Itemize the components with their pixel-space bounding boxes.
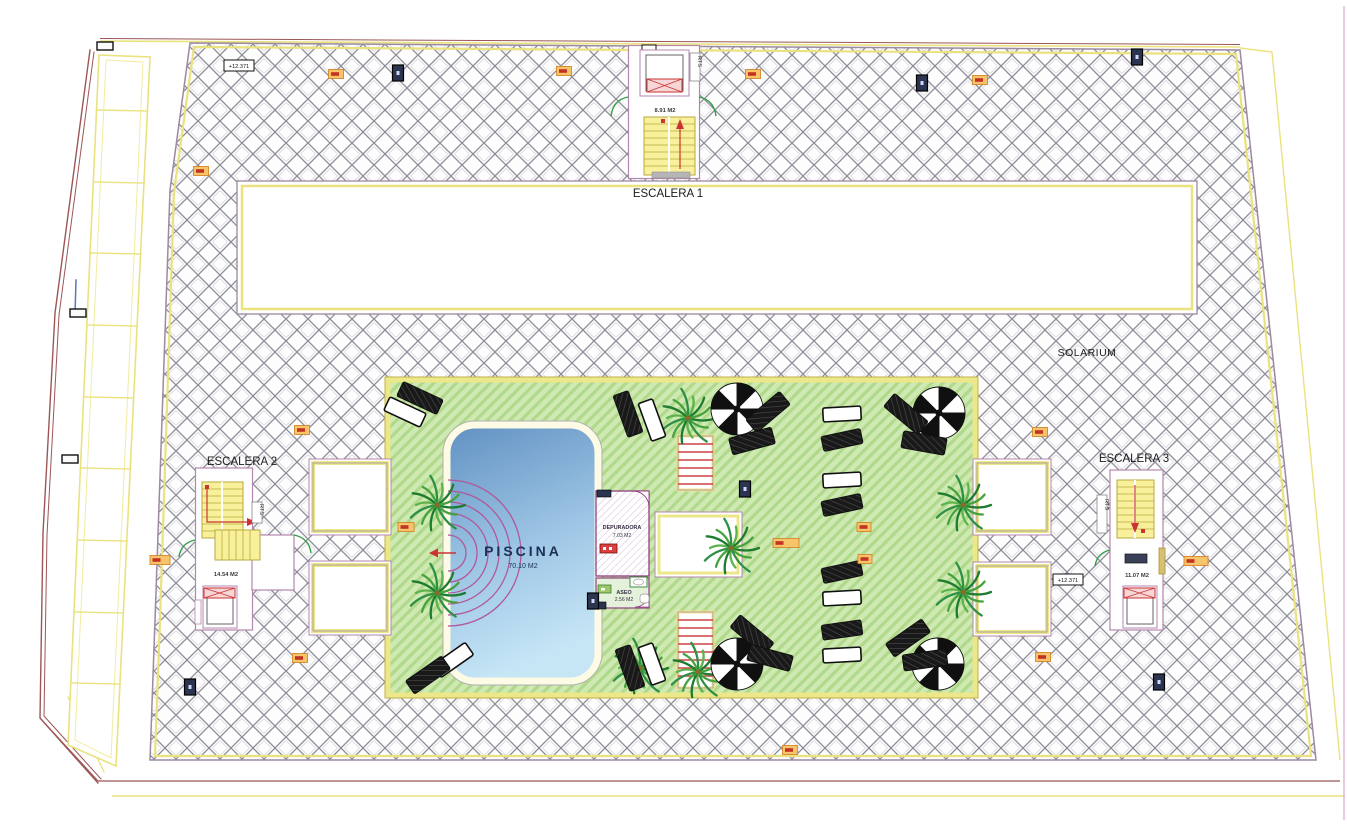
floor-plan-svg: PISCINA 70.10 M2 DEPURADORA 7.03 M2 ASEO… [0, 0, 1347, 825]
skylight-box [973, 459, 1051, 535]
depuradora-label: DEPURADORA [603, 525, 642, 531]
escalera1-title: ESCALERA 1 [633, 188, 703, 200]
orange-code-badge [857, 523, 871, 532]
swimming-pool: PISCINA 70.10 M2 [429, 421, 602, 685]
orange-code-badge [329, 70, 344, 79]
balcony-divider [90, 253, 140, 254]
badge-mark [153, 558, 161, 562]
escalera3-level-badge [1125, 554, 1147, 563]
floor-plan-page: PISCINA 70.10 M2 DEPURADORA 7.03 M2 ASEO… [0, 0, 1347, 825]
palm-trunk [961, 503, 966, 508]
escalera3-area-label: 11.07 M2 [1125, 573, 1149, 579]
navy-riser-badge [1154, 674, 1165, 690]
badge-mark [785, 748, 793, 752]
skylight-box [309, 459, 391, 535]
palm-trunk [729, 546, 734, 551]
pool-area-label: 70.10 M2 [508, 563, 537, 570]
badge-dot [397, 71, 400, 75]
badge-mark [860, 525, 868, 529]
badge-dot [1136, 55, 1139, 59]
sun-lounger-icon [823, 472, 862, 488]
orange-code-badge [150, 556, 170, 565]
navy-riser-badge [393, 65, 404, 81]
badge-mark [559, 69, 567, 73]
aseo-area-label: 2.56 M2 [615, 597, 634, 603]
palm-trunk [435, 591, 440, 596]
parasol-pole [936, 410, 943, 417]
badge-dot [189, 685, 192, 689]
badge-mark [861, 557, 869, 561]
parasol-pole [734, 661, 741, 668]
orange-code-badge [973, 76, 988, 85]
upper-void-rectangle [237, 181, 1197, 314]
badge-mark [748, 72, 756, 76]
orange-code-badge [746, 70, 761, 79]
palm-trunk [961, 590, 966, 595]
sun-lounger-icon [823, 647, 862, 663]
deck-walkway-north [678, 436, 713, 490]
badge-mark [1035, 430, 1043, 434]
orange-code-badge [1036, 653, 1051, 662]
palm-trunk [435, 503, 440, 508]
escalera2-rts-label: RTS [258, 504, 264, 515]
badge-mark [297, 428, 305, 432]
escalera3-title: ESCALERA 3 [1099, 453, 1169, 465]
navy-riser-badge [588, 593, 599, 609]
facade-post [97, 42, 113, 50]
pool-label: PISCINA [484, 543, 562, 559]
escalera1-rts-label: RTS [696, 56, 702, 67]
balcony-divider [71, 683, 120, 684]
facade-post [70, 309, 86, 317]
balcony-divider [74, 612, 123, 613]
orange-code-badge [194, 167, 209, 176]
facade-post [62, 455, 78, 463]
balcony-divider [77, 540, 127, 541]
orange-code-badge [1184, 557, 1208, 566]
badge-mark [196, 169, 204, 173]
depuradora-room: DEPURADORA 7.03 M2 [596, 490, 649, 576]
badge-dot [744, 487, 747, 491]
navy-riser-badge [1132, 49, 1143, 65]
navy-riser-badge [740, 481, 751, 497]
balcony-divider [97, 110, 148, 111]
orange-code-badge [295, 426, 310, 435]
elevation-value: +12.371 [1058, 578, 1078, 584]
aseo-label: ASEO [616, 590, 631, 596]
palm-trunk [686, 416, 691, 421]
escalera1-area-label: 8.91 M2 [655, 108, 676, 114]
elevation-badge-east: +12.371 [1053, 574, 1083, 585]
badge-dot [921, 81, 924, 85]
badge-mark [776, 541, 784, 545]
badge-dot [1158, 680, 1161, 684]
depuradora-area-label: 7.03 M2 [613, 533, 632, 539]
orange-code-badge [293, 654, 308, 663]
parasol-pole [734, 406, 741, 413]
solarium-label: SOLARIUM [1058, 347, 1117, 359]
badge-dot [592, 599, 595, 603]
skylight-box [973, 562, 1051, 636]
riser-badge [597, 490, 611, 497]
aseo-badge [598, 585, 611, 593]
skylight-box [309, 561, 391, 635]
orange-code-badge [773, 539, 799, 548]
orange-code-badge [858, 555, 872, 564]
elevation-badge-north: +12.371 [224, 60, 254, 71]
navy-riser-badge [917, 75, 928, 91]
balcony-divider [80, 468, 130, 469]
sun-lounger-icon [823, 590, 862, 606]
badge-mark [1038, 655, 1046, 659]
orange-code-badge [783, 746, 798, 755]
pump-badge [600, 544, 617, 553]
escalera2-area-label: 14.54 M2 [214, 572, 238, 578]
badge-mark [331, 72, 339, 76]
aseo-room: ASEO 2.56 M2 [595, 577, 649, 609]
navy-riser-badge [185, 679, 196, 695]
elevation-value: +12.371 [229, 64, 249, 70]
escalera2-title: ESCALERA 2 [207, 456, 277, 468]
orange-code-badge [1033, 428, 1048, 437]
sun-lounger-icon [823, 406, 862, 422]
badge-mark [1187, 559, 1195, 563]
escalera3-rts-label: RTS [1103, 499, 1109, 510]
badge-mark [975, 78, 983, 82]
balcony-divider [84, 397, 134, 398]
balcony-divider [87, 325, 137, 326]
palm-trunk [696, 670, 701, 675]
orange-code-badge [398, 523, 414, 532]
badge-mark [295, 656, 303, 660]
orange-code-badge [557, 67, 572, 76]
balcony-divider [93, 182, 144, 183]
badge-mark [401, 525, 409, 529]
